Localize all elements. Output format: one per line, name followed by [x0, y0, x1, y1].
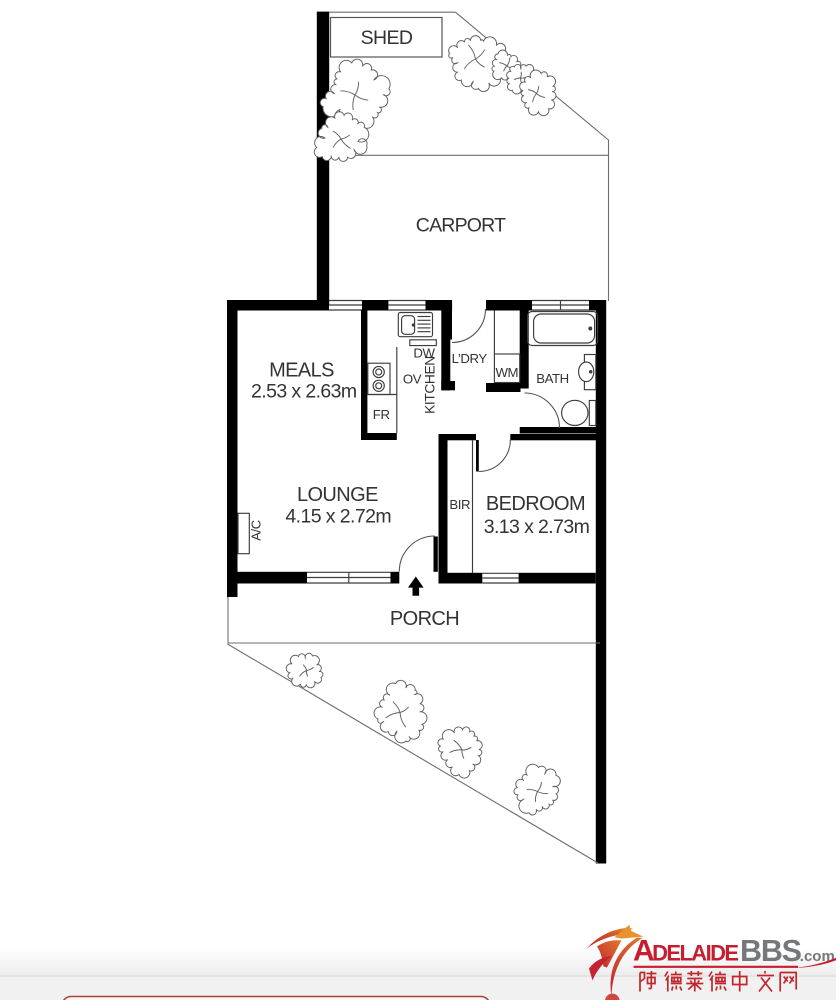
svg-text:FR: FR	[373, 407, 390, 422]
svg-text:KITCHEN: KITCHEN	[423, 356, 438, 414]
svg-text:SHED: SHED	[361, 27, 413, 49]
svg-text:WM: WM	[495, 365, 518, 380]
svg-text:4.15 x 2.72m: 4.15 x 2.72m	[285, 506, 391, 528]
svg-text:2.53 x 2.63m: 2.53 x 2.63m	[251, 381, 357, 403]
svg-text:PORCH: PORCH	[390, 608, 459, 630]
svg-text:OV: OV	[403, 372, 422, 387]
svg-text:3.13 x 2.73m: 3.13 x 2.73m	[484, 516, 590, 538]
svg-text:CARPORT: CARPORT	[416, 215, 506, 237]
svg-text:LOUNGE: LOUNGE	[297, 484, 378, 506]
svg-text:BATH: BATH	[536, 371, 569, 386]
svg-text:BEDROOM: BEDROOM	[486, 493, 585, 515]
svg-text:A/C: A/C	[249, 520, 264, 540]
svg-text:L’DRY: L’DRY	[452, 351, 488, 366]
svg-text:MEALS: MEALS	[269, 360, 334, 382]
svg-text:BIR: BIR	[449, 497, 470, 512]
